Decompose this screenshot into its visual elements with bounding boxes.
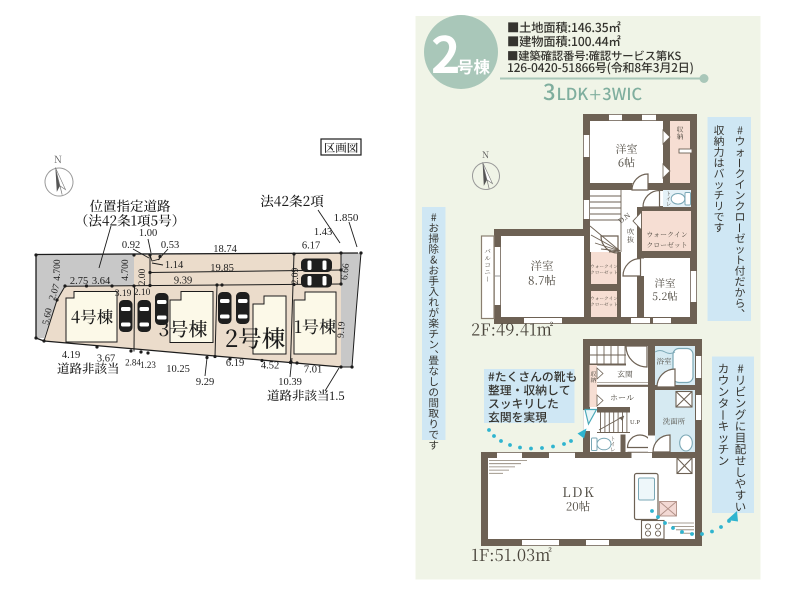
svg-text:U.P: U.P [630, 419, 640, 426]
